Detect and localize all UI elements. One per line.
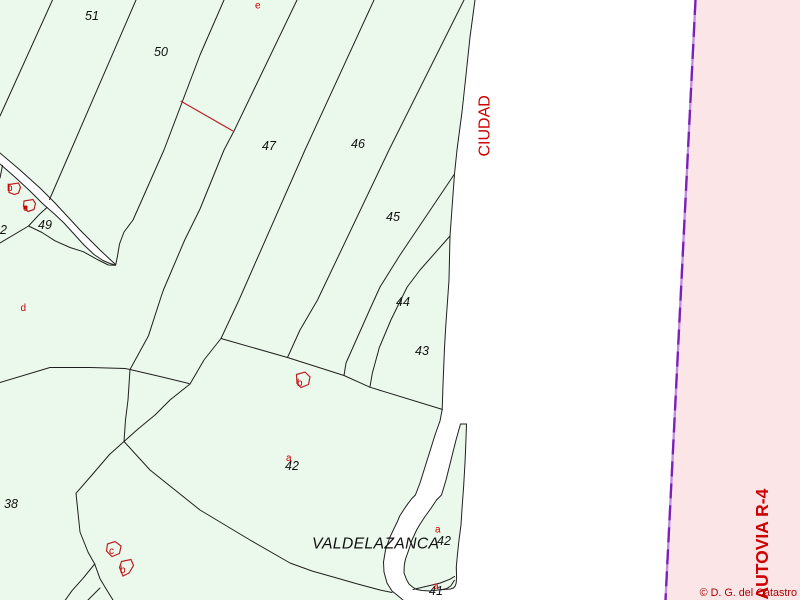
svg-text:e: e [255,1,261,12]
svg-text:b: b [7,183,13,194]
svg-text:38: 38 [4,497,18,511]
svg-text:45: 45 [386,210,400,224]
svg-text:c: c [23,203,28,214]
svg-text:49: 49 [38,218,52,232]
svg-text:c: c [109,546,114,557]
svg-text:51: 51 [85,9,99,23]
svg-text:CIUDAD: CIUDAD [477,95,494,156]
svg-text:AUTOVIA R-4: AUTOVIA R-4 [752,488,772,599]
svg-text:VALDELAZANCA: VALDELAZANCA [312,536,439,553]
svg-text:44: 44 [396,295,410,309]
svg-text:d: d [21,303,27,314]
svg-text:a: a [286,453,292,464]
svg-text:46: 46 [351,137,365,151]
svg-text:50: 50 [154,45,168,59]
svg-text:43: 43 [415,344,429,358]
svg-text:a: a [433,581,439,592]
svg-text:b: b [120,565,126,576]
svg-text:2: 2 [0,223,7,237]
svg-text:47: 47 [262,139,277,153]
svg-text:© D. G. del Catastro: © D. G. del Catastro [700,587,797,599]
svg-text:b: b [297,378,303,389]
svg-text:a: a [435,525,441,536]
